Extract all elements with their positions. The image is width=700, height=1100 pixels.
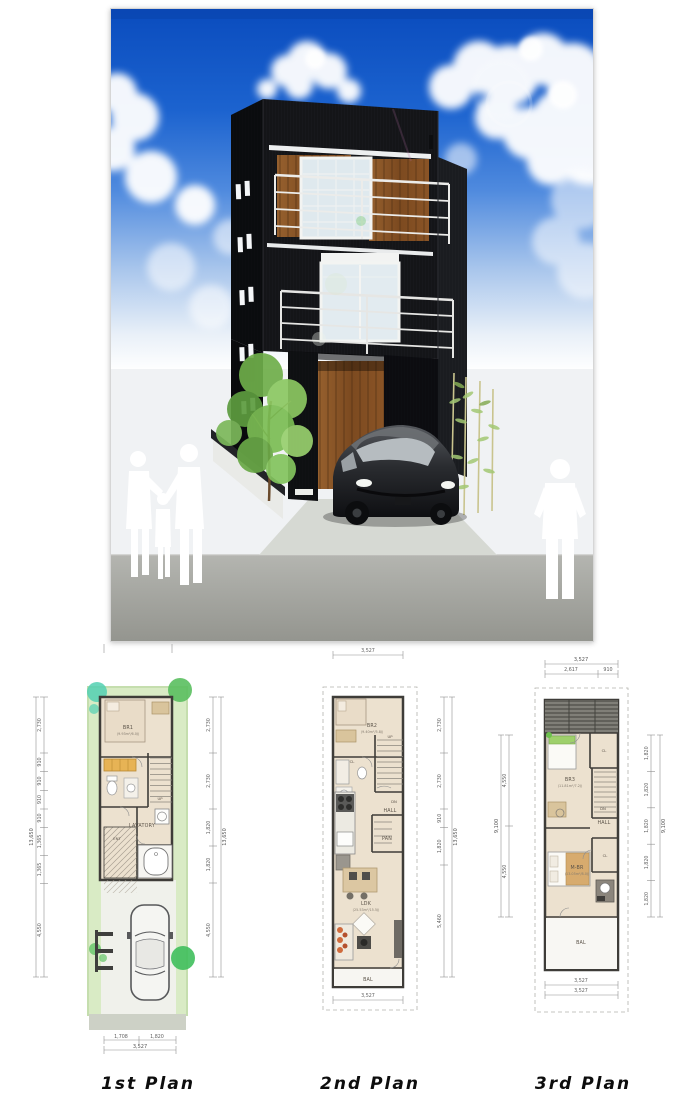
dim-label: 1,820 [644, 783, 650, 797]
plan1-car [127, 905, 173, 1000]
dim-total-label: 3,527 [574, 657, 588, 663]
headlight-left [356, 479, 372, 487]
dim-label: 3,527 [574, 988, 588, 994]
dim-label: 910 [437, 814, 443, 823]
dim-label: 910 [37, 795, 43, 804]
dim-label: 1,365 [37, 863, 43, 877]
dim-label: 2,730 [437, 774, 443, 788]
dim-label: 1,708 [114, 1034, 128, 1040]
dim-label: 1,820 [150, 1034, 164, 1040]
plan2-title: 2nd Plan [320, 1074, 420, 1094]
dim-total-label: 9,100 [661, 819, 667, 833]
floor-plans: BR1 (9.93m²/6.0J) UP LAVATORY ENT [0, 640, 700, 1100]
plan-1: BR1 (9.93m²/6.0J) UP LAVATORY ENT [29, 644, 228, 1094]
dim-label: 3,527 [361, 648, 375, 654]
room-label: BR1 [123, 725, 133, 731]
room-label: BR3 [565, 777, 575, 783]
exterior-rendering-svg [111, 9, 593, 641]
dim-label: 910 [603, 667, 612, 673]
room-label: UP [387, 734, 393, 739]
dim-label: 2,730 [206, 718, 212, 732]
plan1-title: 1st Plan [101, 1074, 195, 1094]
plan2-dims-right: 2,730 2,730 910 1,820 5,460 13,650 [437, 697, 459, 977]
dim-total-label: 13,650 [29, 828, 35, 846]
plan1-street-band [89, 1014, 186, 1030]
room-label: M-BR [570, 865, 584, 871]
plan2-dims-top: 3,527 [333, 648, 403, 659]
plan1-dims-left: 2,730 910 910 910 910 1,365 1,365 4,550 … [29, 697, 48, 977]
dim-total-label: 3,527 [133, 1044, 147, 1050]
room-label: DN [391, 799, 397, 804]
room-label: PAN [382, 836, 392, 842]
dim-label: 910 [37, 757, 43, 766]
dim-label: 2,730 [206, 774, 212, 788]
plan3-dims-right: 1,820 1,820 1,820 1,820 1,820 9,100 [644, 735, 667, 917]
headlight-right [441, 481, 455, 489]
dim-label: 1,820 [206, 858, 212, 872]
dim-label: 1,820 [644, 819, 650, 833]
dim-label: 1,820 [644, 746, 650, 760]
plan3-roof-deck [545, 700, 618, 733]
plan3-title: 3rd Plan [535, 1074, 631, 1094]
dim-label: 5,460 [437, 914, 443, 928]
dim-label: 2,617 [564, 667, 578, 673]
dim-label: 4,550 [206, 923, 212, 937]
room-label: DN [600, 806, 606, 811]
dim-label: 3,527 [574, 978, 588, 984]
page: BR1 (9.93m²/6.0J) UP LAVATORY ENT [0, 0, 700, 1100]
room-label: LDK [361, 901, 372, 907]
dim-label: 1,820 [437, 839, 443, 853]
floor-plans-svg: BR1 (9.93m²/6.0J) UP LAVATORY ENT [0, 640, 700, 1100]
room-label: BAL [576, 940, 586, 946]
dim-label: 4,550 [502, 774, 508, 788]
plan3-dims-bottom: 3,527 3,527 [545, 978, 618, 999]
plan1-dims-right: 2,730 2,730 1,820 1,820 4,550 13,650 [206, 697, 228, 977]
room-size-label: (9.40m²/5.8J) [361, 730, 384, 734]
room-size-label: (9.93m²/6.0J) [117, 732, 140, 736]
room-label: ENT [113, 836, 121, 841]
entrance-step [295, 489, 313, 495]
dim-label: 2,730 [37, 718, 43, 732]
dim-label: 910 [37, 776, 43, 785]
dim-label: 1,820 [206, 821, 212, 835]
dim-total-label: 13,650 [222, 828, 228, 846]
dim-label: 4,550 [37, 923, 43, 937]
dim-label: 1,820 [644, 892, 650, 906]
room-size-label: (11.81m²/7.2J) [558, 784, 583, 788]
plan1-dims-bottom: 1,708 1,820 3,527 [104, 1034, 176, 1054]
plan3-dims-left: 4,550 4,550 9,100 [494, 735, 513, 917]
room-label: HALL [383, 808, 396, 814]
room-label: BR2 [367, 723, 377, 729]
dim-label: 3,527 [361, 993, 375, 999]
dim-total-label: 9,100 [494, 819, 500, 833]
room-size-label: (13.05m²/8.0J) [565, 872, 590, 876]
plan2-dims-bottom: 3,527 [333, 993, 403, 1004]
room-label: BAL [363, 977, 373, 983]
plan-2: BR2 (9.40m²/5.8J) CL UP DN HALL PAN LDK … [320, 648, 459, 1094]
plan-3: CL BR3 (11.81m²/7.2J) DN HALL M-BR (13.0… [494, 657, 667, 1094]
exterior-rendering [110, 8, 594, 642]
room-label: HALL [597, 820, 610, 826]
room-size-label: (25.53m²/15.5J) [353, 908, 380, 912]
dim-label: 4,550 [502, 865, 508, 879]
dim-label: 2,730 [437, 718, 443, 732]
dim-total-label: 13,650 [453, 828, 459, 846]
dim-label: 1,820 [644, 856, 650, 870]
room-label: LAVATORY [129, 823, 155, 829]
antenna [429, 135, 433, 149]
plan3-dims-top: 3,527 2,617 910 [545, 657, 618, 678]
third-floor-window [301, 158, 371, 238]
dim-label: 910 [37, 813, 43, 822]
plan1-dims-top-ticks [104, 644, 172, 653]
dim-label: 1,365 [37, 835, 43, 849]
room-label: UP [157, 796, 163, 801]
